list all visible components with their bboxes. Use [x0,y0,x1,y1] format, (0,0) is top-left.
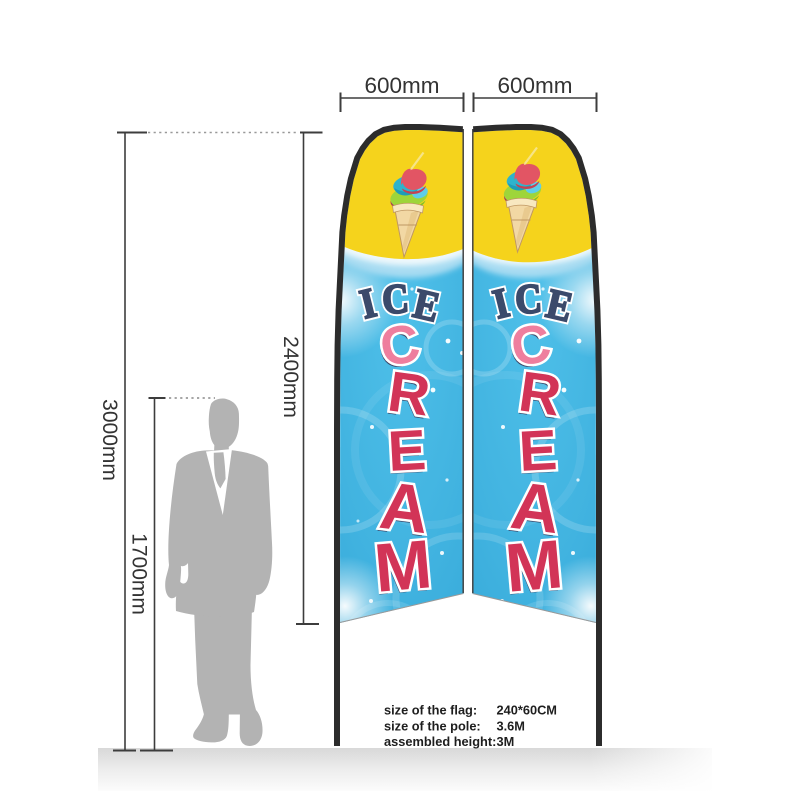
svg-text:assembled height:: assembled height: [384,734,496,749]
svg-text:M: M [371,525,435,607]
svg-text:600mm: 600mm [364,73,439,98]
svg-text:size of the pole:: size of the pole: [384,718,481,733]
svg-text:240*60CM: 240*60CM [497,703,557,718]
svg-text:2400mm: 2400mm [279,336,302,418]
svg-text:1700mm: 1700mm [128,533,151,615]
svg-text:size of the flag:: size of the flag: [384,703,477,718]
svg-text:3.6M: 3.6M [497,718,525,733]
svg-text:3000mm: 3000mm [98,399,121,481]
svg-text:3M: 3M [497,734,515,749]
svg-text:600mm: 600mm [497,73,572,98]
